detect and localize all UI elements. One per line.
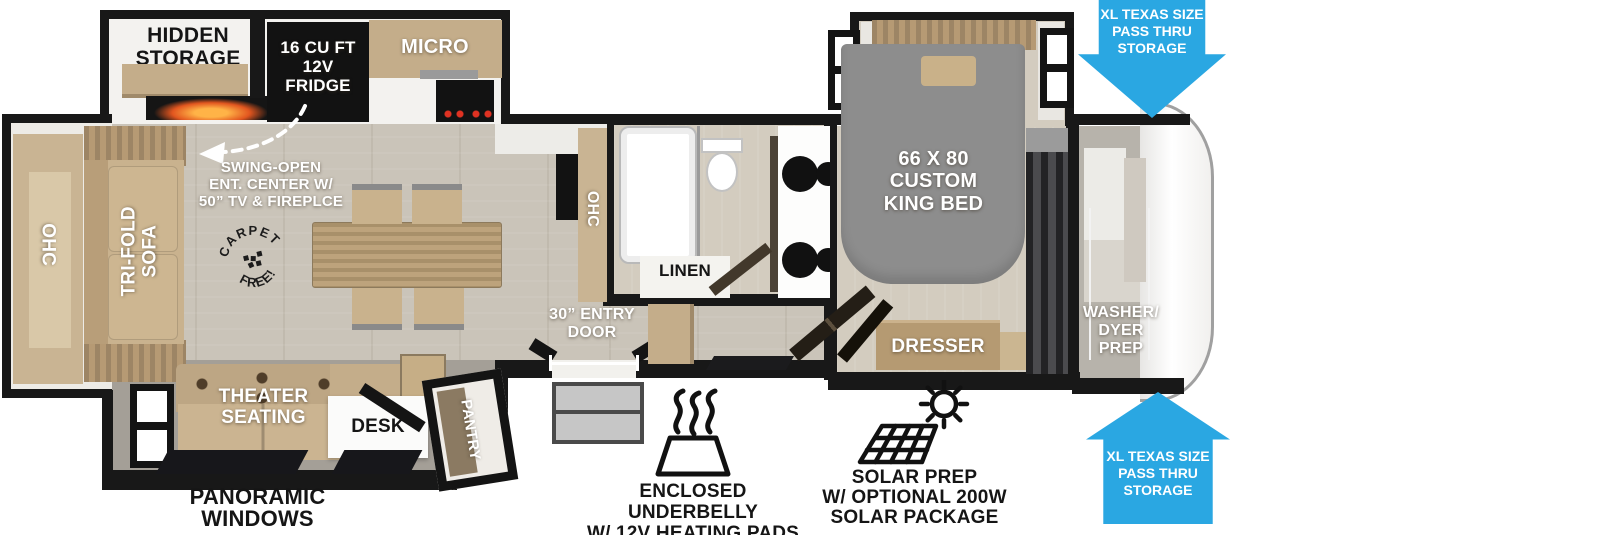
dining-table <box>312 222 502 288</box>
pantry: PANTRY <box>422 368 519 491</box>
bathtub <box>619 126 697 264</box>
underbelly-label: ENCLOSED UNDERBELLY W/ 12V HEATING PADS <box>582 482 804 535</box>
hidden-storage-line1: HIDDEN <box>118 24 258 47</box>
theater-line2: SEATING <box>186 407 341 428</box>
underbelly-line2: W/ 12V HEATING PADS <box>582 524 804 535</box>
bathroom-vanity <box>778 126 830 298</box>
washer-dryer-prep-label: WASHER/ DYER PREP <box>1078 304 1164 358</box>
closet-top <box>1026 128 1068 152</box>
pass-thru-top-line2: PASS THRU <box>1078 23 1226 40</box>
linen-label: LINEN <box>642 262 728 281</box>
floor-window <box>156 450 309 474</box>
heating-pads-icon <box>642 388 744 480</box>
solar-prep-label: SOLAR PREP W/ OPTIONAL 200W SOLAR PACKAG… <box>822 468 1007 528</box>
pass-thru-top-line1: XL TEXAS SIZE <box>1078 6 1226 23</box>
panoramic-line1: PANORAMIC <box>160 486 355 508</box>
wall-segment-front-bottom <box>1072 378 1184 394</box>
toilet-tank <box>701 138 743 153</box>
hidden-storage-cabinet <box>122 64 248 98</box>
rv-floorplan: HIDDEN STORAGE 16 CU FT 12V FRIDGE MICRO… <box>0 0 1600 535</box>
swing-line3: 50” TV & FIREPLCE <box>182 194 360 211</box>
panoramic-line2: WINDOWS <box>160 508 355 530</box>
dresser: DRESSER <box>876 320 1000 370</box>
underbelly-line1: ENCLOSED UNDERBELLY <box>582 482 804 524</box>
fridge-line1: 16 CU FT <box>267 38 369 57</box>
solar-panel-icon <box>852 380 970 470</box>
swing-open-arrow <box>193 102 311 166</box>
shower-door <box>697 126 700 264</box>
king-bed-line2: CUSTOM <box>866 170 1001 192</box>
pass-thru-bottom-line1: XL TEXAS SIZE <box>1086 448 1230 465</box>
ohc-kitchen-label: OHC <box>583 189 601 229</box>
swing-line1: SWING-OPEN <box>182 160 360 177</box>
theater-seating-label: THEATER SEATING <box>186 386 341 429</box>
entry-door-line2: DOOR <box>538 324 646 342</box>
trifold-sofa-label: TRI-FOLD SOFA <box>119 171 162 331</box>
bedroom-window-right <box>1040 28 1074 108</box>
carpet-stamp-pattern <box>243 251 265 270</box>
solar-line1: SOLAR PREP <box>822 468 1007 488</box>
dining-chair <box>352 184 402 224</box>
king-bed-line3: KING BED <box>866 193 1001 215</box>
washer-line1: WASHER/ <box>1078 304 1164 322</box>
trifold-line1: TRI-FOLD <box>119 171 140 331</box>
solar-line3: SOLAR PACKAGE <box>822 508 1007 528</box>
washer-line3: PREP <box>1078 340 1164 358</box>
swing-open-label: SWING-OPEN ENT. CENTER W/ 50” TV & FIREP… <box>182 160 360 210</box>
entry-door-label: 30” ENTRY DOOR <box>538 306 646 342</box>
microwave <box>420 70 478 79</box>
sink-bowl <box>782 156 818 192</box>
pass-thru-bottom-line2: PASS THRU <box>1086 465 1230 482</box>
king-bed-line1: 66 X 80 <box>866 148 1001 170</box>
bedroom-closet <box>1026 152 1068 374</box>
dining-chair <box>352 288 402 330</box>
panoramic-windows-label: PANORAMIC WINDOWS <box>160 486 355 530</box>
toilet <box>706 152 738 192</box>
ohc-left-label: OHC <box>37 217 58 273</box>
entry-door-bracket-tick <box>636 355 639 371</box>
floor-window <box>706 356 794 370</box>
pantry-label: PANTRY <box>419 392 522 468</box>
pass-thru-arrow-top: XL TEXAS SIZE PASS THRU STORAGE <box>1078 0 1226 118</box>
micro-label: MICRO <box>375 36 495 58</box>
hall-wardrobe <box>648 304 694 364</box>
dining-chair <box>412 184 462 224</box>
fridge-line3: FRIDGE <box>267 76 369 95</box>
pass-thru-bottom-line3: STORAGE <box>1086 482 1230 499</box>
washer-line2: DYER <box>1078 322 1164 340</box>
swing-line2: ENT. CENTER W/ <box>182 177 360 194</box>
cabinet-divider-wall <box>250 18 265 98</box>
sink-bowl <box>782 242 818 278</box>
entry-steps <box>552 382 644 444</box>
sofa-armrest-bottom <box>84 340 186 382</box>
floor-window <box>332 450 423 474</box>
theater-line1: THEATER <box>186 386 341 407</box>
kitchen-tv <box>556 154 578 220</box>
sink-bowl <box>816 162 830 186</box>
dining-chair <box>414 288 464 330</box>
king-bed-label: 66 X 80 CUSTOM KING BED <box>866 148 1001 215</box>
washer-prep-panel <box>1124 158 1146 282</box>
entry-door-bracket <box>549 362 639 365</box>
pass-thru-top-line3: STORAGE <box>1078 40 1226 57</box>
pass-thru-arrow-bottom: XL TEXAS SIZE PASS THRU STORAGE <box>1086 392 1230 524</box>
cooktop <box>436 80 494 122</box>
sink-bowl <box>816 248 830 272</box>
bed-pillow <box>921 56 976 86</box>
fridge-line2: 12V <box>267 57 369 76</box>
entry-door-bracket-tick <box>549 355 552 371</box>
entry-door-line1: 30” ENTRY <box>538 306 646 324</box>
trifold-line2: SOFA <box>140 171 161 331</box>
solar-line2: W/ OPTIONAL 200W <box>822 488 1007 508</box>
sofa-back <box>84 160 108 344</box>
